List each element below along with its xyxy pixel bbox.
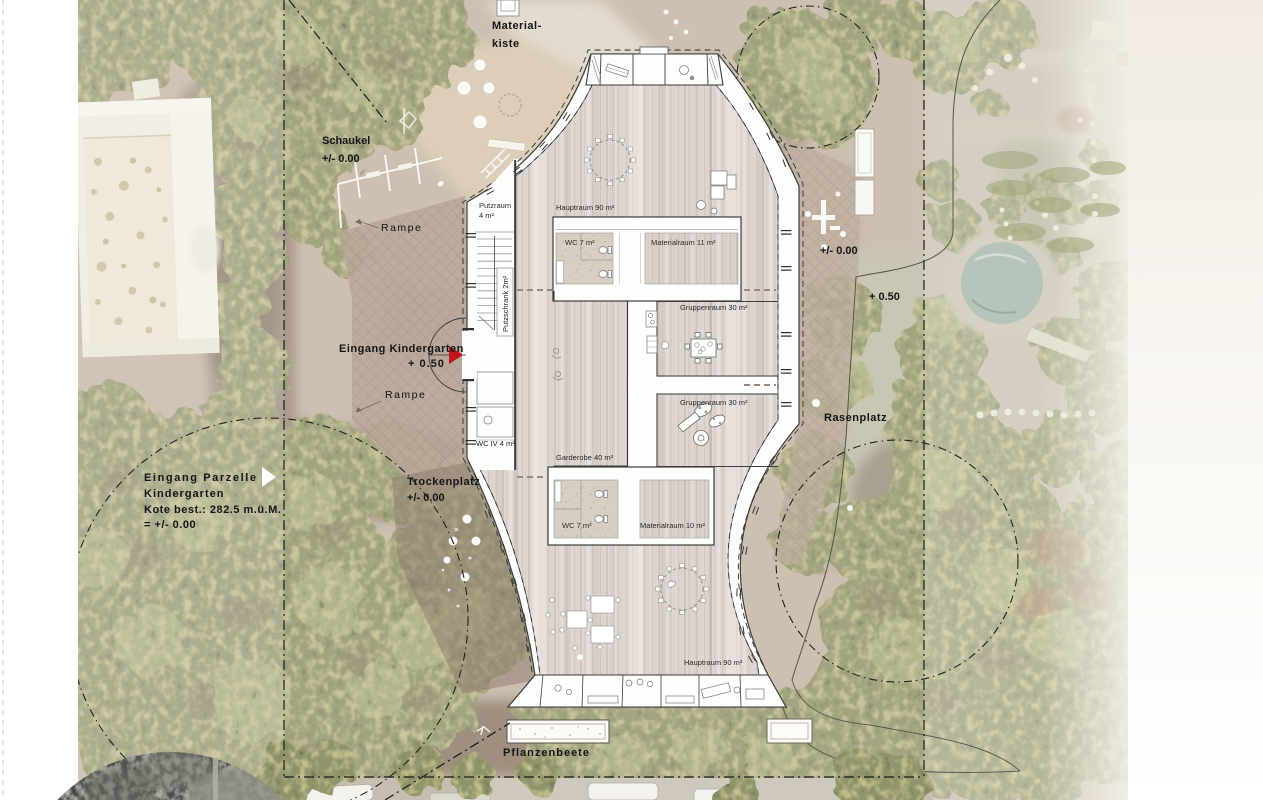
svg-text:Kote best.: 282.5 m.ü.M.: Kote best.: 282.5 m.ü.M.	[144, 504, 281, 516]
svg-text:Putzschrank 2m²: Putzschrank 2m²	[501, 275, 510, 332]
svg-text:Rasenplatz: Rasenplatz	[824, 412, 887, 424]
svg-text:Garderobe 40 m²: Garderobe 40 m²	[556, 453, 614, 462]
svg-text:Materialraum 11 m²: Materialraum 11 m²	[651, 238, 716, 247]
svg-text:WC IV 4 m²: WC IV 4 m²	[476, 439, 515, 448]
svg-text:Hauptraum 90 m²: Hauptraum 90 m²	[556, 203, 615, 212]
svg-text:Eingang Kindergarten: Eingang Kindergarten	[339, 343, 464, 355]
svg-text:= +/- 0.00: = +/- 0.00	[144, 519, 196, 531]
svg-text:Kindergarten: Kindergarten	[144, 488, 224, 500]
svg-text:WC 7 m²: WC 7 m²	[565, 238, 595, 247]
svg-text:+ 0.50: + 0.50	[869, 291, 900, 303]
svg-text:Schaukel: Schaukel	[322, 135, 370, 147]
svg-text:WC 7 m²: WC 7 m²	[562, 521, 592, 530]
svg-text:Putzraum: Putzraum	[479, 201, 511, 210]
svg-text:Rampe: Rampe	[381, 222, 422, 234]
svg-text:+ 0.50: + 0.50	[408, 358, 445, 370]
svg-text:Rampe: Rampe	[385, 389, 426, 401]
svg-text:Pflanzenbeete: Pflanzenbeete	[503, 747, 590, 759]
svg-text:kiste: kiste	[492, 38, 520, 50]
svg-text:Eingang Parzelle: Eingang Parzelle	[144, 472, 258, 484]
svg-text:Material-: Material-	[492, 20, 542, 32]
svg-text:Materialraum 10 m²: Materialraum 10 m²	[640, 521, 706, 530]
svg-text:+/- 0.00: +/- 0.00	[820, 245, 858, 257]
svg-text:Gruppenraum 30 m²: Gruppenraum 30 m²	[680, 303, 748, 312]
svg-text:+/- 0.00: +/- 0.00	[407, 492, 445, 504]
svg-text:+/- 0.00: +/- 0.00	[322, 153, 360, 165]
svg-text:Trockenplatz: Trockenplatz	[407, 476, 480, 488]
svg-text:4 m²: 4 m²	[479, 211, 495, 220]
svg-text:Gruppenraum 30 m²: Gruppenraum 30 m²	[680, 398, 748, 407]
svg-text:Hauptraum 90 m²: Hauptraum 90 m²	[684, 658, 743, 667]
